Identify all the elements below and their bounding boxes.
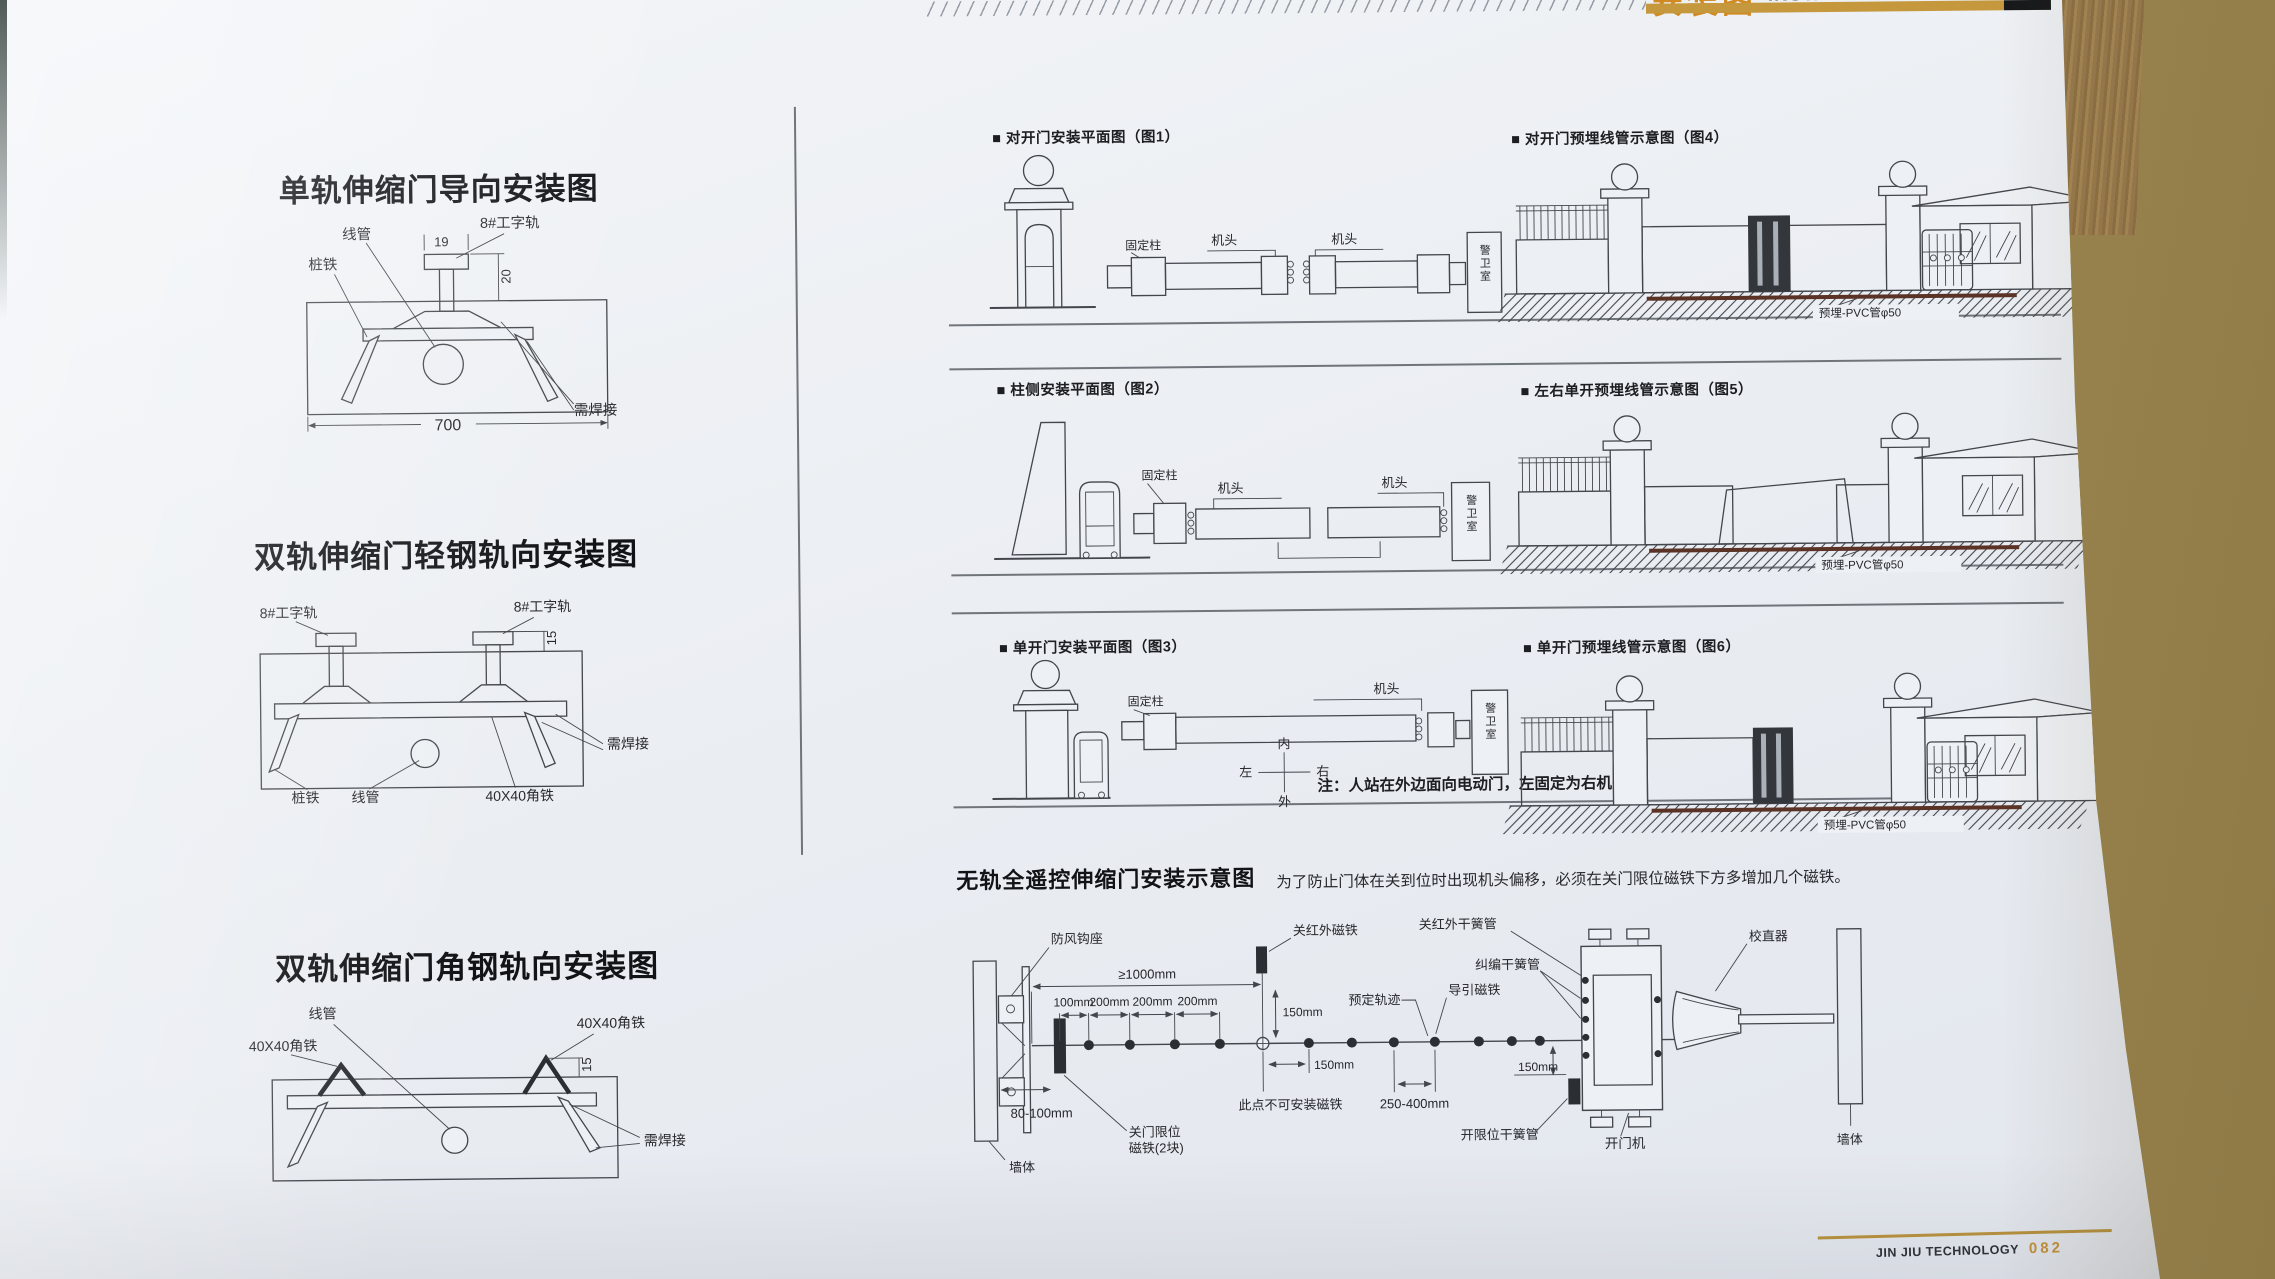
leader [1148,483,1164,503]
photographed-catalog-page: 安装图 INSTALLATION DRAWINGS 单轨伸缩门导向安装图 [0,0,2275,1279]
leader [1134,710,1150,716]
leader [1011,948,1049,996]
stake-label: 桩铁 [308,256,337,273]
fig2-plan-side-pillar: 警卫室 固定柱 机头 机头 [981,392,1493,587]
photo-left-edge [0,0,7,320]
dim-200a: 200mm [1089,995,1129,1009]
angle-iron-label: 40X40角铁 [485,787,554,804]
rollers [1416,718,1422,740]
dim-19-label: 19 [434,234,449,249]
machine-head-right [1309,256,1335,294]
opener-label: 开门机 [1605,1136,1646,1151]
straightener-funnel [1672,991,1741,1050]
gate-lattice-right [1335,261,1417,288]
head-label: 机头 [1373,681,1399,696]
head-slit [1761,734,1767,798]
straightener-label: 校直器 [1749,928,1788,943]
rail-left-label: 8#工字轨 [260,605,318,622]
stake-label: 桩铁 [291,790,319,806]
close-ir-magnet-bar [1256,946,1267,973]
leader [1064,1075,1127,1132]
row-separator [952,602,2064,615]
no-magnet-label: 此点不可安装磁铁 [1238,1097,1342,1113]
i-beam-rail [392,254,501,329]
conduit-label: 线管 [342,226,371,243]
retractable-gate [1647,738,1754,805]
section-title-monorail: 单轨伸缩门导向安装图 [278,163,598,211]
leader [1315,249,1383,256]
stake-left [287,1102,328,1166]
rail-right-label: 8#工字轨 [514,598,572,615]
leader [1435,998,1446,1034]
diagram-dual-rail-light-steel: 15 8#工字轨 8#工字轨 需焊接 桩铁 线管 40X40角铁 [256,596,678,815]
header-black-tip [2004,0,2051,10]
open-limit-reed-label: 开限位干簧管 [1461,1127,1539,1143]
rail-label: 8#工字轨 [480,214,540,232]
fixed-post-block [1144,713,1176,749]
fixed-post-label: 固定柱 [1125,237,1161,252]
head-slit [1776,733,1782,797]
top-hatch-strip [922,0,1646,17]
planned-track-label: 预定轨迹 [1348,992,1400,1007]
guard-room-label: 警卫室 [1478,243,1491,283]
rollers [1188,512,1194,534]
brick-wall [1521,751,1614,806]
leaders [334,233,574,412]
machine-head-left [1261,256,1287,294]
pvc-label: 预埋-PVC管φ50 [1819,305,1901,320]
right-wall-label: 墙体 [1837,1132,1863,1147]
dim-150a: 150mm [1283,1005,1323,1019]
dim-arrows-row [1062,1014,1218,1015]
leader [1269,938,1291,951]
section-title-dual-light: 双轨伸缩门轻钢轨向安装图 [254,528,638,577]
footer: JIN JIU TECHNOLOGY 082 [1876,1239,2063,1261]
dim-1000-line [1033,984,1260,986]
pvc-label: 预埋-PVC管φ50 [1821,557,1903,572]
flat-bar [275,701,567,719]
angle-left-label: 40X40角铁 [249,1038,318,1055]
fence [1518,457,1610,492]
leader [1401,1000,1427,1036]
head-left-label: 机头 [1217,481,1243,496]
cover-panel [1718,479,1853,544]
bottom-section-title: 无轨全遥控伸缩门安装示意图 [956,861,1255,896]
close-limit-label-2: 磁铁(2块) [1129,1140,1184,1156]
machine-head-elevation [1074,732,1109,798]
angle-iron-right [524,1058,569,1093]
gate-lattice-left [1196,508,1310,539]
fig4-elevation: 预埋-PVC管φ50 [1495,138,2097,340]
spring-coil [1456,720,1470,738]
fig1-plan-double-opening: 警卫室 固定柱 机头 机头 [978,142,1510,329]
open-limit-reed-bar [1568,1078,1580,1104]
diagram-dual-rail-angle-steel: 15 线管 40X40角铁 40X40角铁 需焊接 [248,999,730,1209]
compass-outer: 外 [1278,794,1291,809]
gate-opener-machine [1581,929,1663,1128]
gate-lattice-right [1328,507,1440,538]
head-slit [1757,222,1763,286]
gate-lattice [1176,715,1416,743]
conduit-circle [442,1127,468,1153]
rollers [1441,510,1447,532]
gate-head-panel [1748,215,1791,291]
spring-coil [1134,513,1154,533]
diagram-monorail-guide: 19 20 700 线管 8#工字轨 桩铁 需焊接 [274,204,676,443]
flat-bar [287,1093,596,1109]
fixed-post-block [1154,503,1186,543]
angle-iron-left [319,1065,364,1095]
conduit-label: 线管 [351,789,379,805]
leader [989,1141,1005,1160]
conduit-label: 线管 [308,1005,336,1021]
dim-1000: ≥1000mm [1118,966,1176,982]
dim-200b: 200mm [1132,994,1172,1008]
leader [1214,498,1282,509]
i-beam-right [459,632,528,703]
hook-label: 防风钩座 [1051,931,1103,946]
machine-head-elevation [1079,482,1120,558]
fence [1516,205,1608,240]
close-limit-label-1: 关门限位 [1129,1124,1181,1139]
stake-left [269,715,300,772]
pillar-elevation [988,155,1095,308]
head-right-label: 机头 [1381,475,1407,490]
guide-magnet-label: 导引磁铁 [1448,982,1500,997]
guard-room-label: 警卫室 [1484,701,1497,741]
leader [1715,944,1747,991]
tapered-pillar [1011,422,1066,555]
ground-line [994,558,1150,559]
footer-page-number: 082 [2029,1239,2063,1257]
i-beam-left [302,633,371,704]
page-content: 安装图 INSTALLATION DRAWINGS 单轨伸缩门导向安装图 [0,0,2275,1279]
brick-wall [1519,491,1612,546]
rollers [1287,261,1293,283]
weld-label: 需焊接 [607,735,649,751]
straightener-rod [1739,1014,1834,1024]
fence [1521,717,1613,752]
dim-15-label: 15 [544,631,559,646]
dim-150b: 150mm [1314,1058,1354,1072]
right-wall [1837,929,1863,1104]
fixed-post-block [1417,255,1449,293]
dim-15 [513,631,548,651]
leader [1378,493,1444,508]
dim-80-label: 80-100mm [1010,1105,1072,1121]
spring-coil [1122,722,1144,740]
compass-inner: 内 [1277,736,1290,751]
guard-room-label: 警卫室 [1465,493,1478,533]
rollers [1303,261,1309,283]
gate-lattice-left [1165,262,1261,289]
dim-150c: 150mm [1518,1060,1558,1074]
angle-right-label: 40X40角铁 [577,1014,646,1031]
left-wall-label: 墙体 [1009,1160,1035,1175]
head-right-label: 机头 [1331,232,1357,247]
footer-brand: JIN JIU TECHNOLOGY [1876,1242,2019,1260]
dim-20-label: 20 [498,269,513,284]
leader [1314,699,1422,712]
trackless-gate-schematic: 防风钩座 墙体 100mm 200mm 2 [951,895,1934,1214]
close-ir-reed-label: 关红外干簧管 [1419,916,1497,932]
head-slit [1773,221,1779,285]
pvc-label: 预埋-PVC管φ50 [1824,817,1906,832]
gate-head-panel [1753,727,1794,803]
section-title-dual-angle: 双轨伸缩门角钢轨向安装图 [275,940,659,989]
left-wall [973,961,998,1141]
guard-house [1914,438,2099,542]
compass-left: 左 [1239,765,1252,780]
rectify-reed-label: 纠编干簧管 [1475,957,1540,973]
close-ir-magnet-label: 关红外磁铁 [1293,923,1358,939]
bottom-section-note: 为了防止门体在关到位时出现机头偏移，必须在关门限位磁铁下方多增加几个磁铁。 [1276,865,1850,893]
fig3-plan-single-opening: 警卫室 固定柱 机头 内 外 左 右 [983,652,1530,825]
stake-right [525,712,556,767]
leader [1621,1113,1629,1136]
spring-coil [1107,266,1131,288]
conduit-circle [423,344,463,384]
leader [1534,1099,1567,1133]
dim-250: 250-400mm [1380,1096,1450,1112]
dim-15-label: 15 [579,1057,594,1072]
footer-gold-line [1818,1229,2112,1239]
head-left-label: 机头 [1211,233,1237,248]
no-magnet-point-mark [1256,1036,1270,1050]
spring-coil [1449,262,1465,284]
conduit-circle [411,739,439,767]
catalog-page: 安装图 INSTALLATION DRAWINGS 单轨伸缩门导向安装图 [0,0,2275,1279]
leader [1131,253,1139,258]
fig5-elevation: 预埋-PVC管φ50 [1498,390,2100,592]
guard-house [1917,698,2102,802]
stake-left [341,336,380,403]
fig6-elevation: 预埋-PVC管φ50 [1500,650,2102,852]
fixed-post-label: 固定柱 [1128,693,1164,708]
column-divider [794,107,803,855]
header-gold-bar [1646,0,2004,13]
fixed-post-label: 固定柱 [1141,467,1177,482]
weld-label: 需焊接 [574,402,618,419]
weld-label: 需焊接 [644,1132,686,1148]
dim-ticks [1060,1012,1220,1042]
fixed-post-block [1131,257,1165,295]
row-separator [949,358,2061,371]
brick-wall [1516,239,1609,294]
ext-line [1262,973,1263,1037]
opener-box [1428,713,1454,747]
dim-700-label: 700 [434,417,461,434]
under-floor-loop [1278,541,1380,558]
dim-100: 100mm [1053,995,1093,1009]
compass: 内 外 左 右 [1239,736,1330,810]
dim-200c: 200mm [1177,994,1217,1008]
